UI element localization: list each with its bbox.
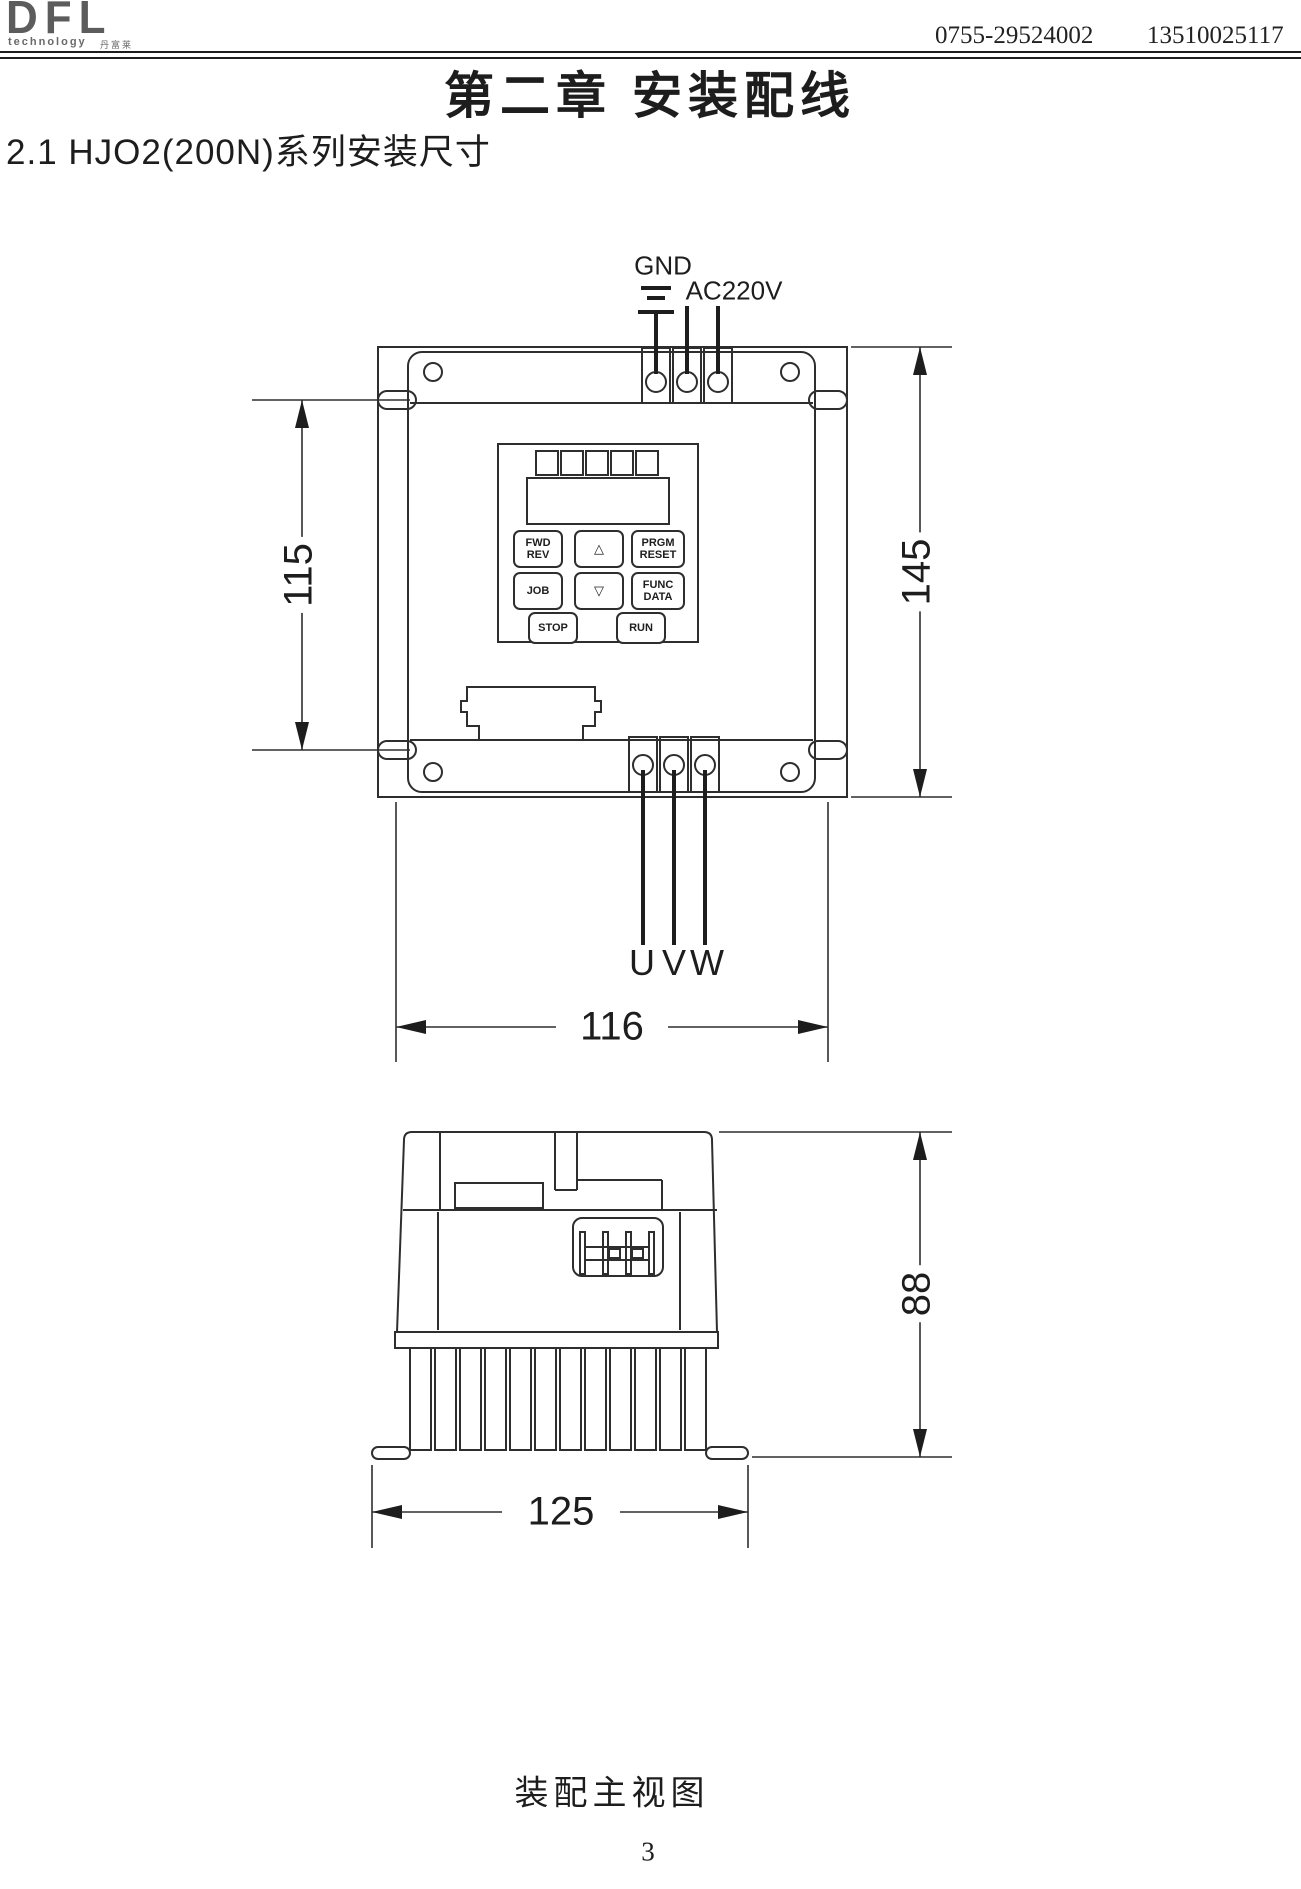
input-wires xyxy=(656,306,718,374)
led-indicator xyxy=(610,450,634,476)
stop-label: STOP xyxy=(538,622,568,634)
func-label: FUNC xyxy=(643,579,674,591)
keypad-button-prgm-reset: PRGM RESET xyxy=(631,530,685,568)
ground-symbol xyxy=(638,288,674,312)
terminal-w-label: W xyxy=(690,942,724,984)
keypad-button-down: ▽ xyxy=(574,572,624,610)
keypad-button-job: JOB xyxy=(513,572,563,610)
led-indicator xyxy=(560,450,584,476)
gnd-label: GND xyxy=(634,251,692,282)
figure-caption: 装配主视图 xyxy=(515,1766,710,1815)
heatsink xyxy=(372,1332,748,1459)
keypad-button-run: RUN xyxy=(616,612,666,644)
data-label: DATA xyxy=(644,591,673,603)
fwd-label: FWD xyxy=(525,537,550,549)
dim-115-label: 115 xyxy=(277,537,322,613)
page-number: 3 xyxy=(641,1837,655,1868)
terminal-u-label: U xyxy=(629,942,655,984)
down-arrow-icon: ▽ xyxy=(594,584,604,598)
led-indicator xyxy=(635,450,659,476)
keypad-button-stop: STOP xyxy=(528,612,578,644)
ac220v-label: AC220V xyxy=(686,276,783,307)
keypad-panel: FWD REV △ PRGM RESET JOB ▽ FUNC DATA STO… xyxy=(497,443,699,643)
led-indicator xyxy=(585,450,609,476)
manual-page: DFL technology 丹富莱 0755-29524002 1351002… xyxy=(0,0,1301,1889)
side-terminal-block xyxy=(573,1218,663,1276)
keypad-button-fwd-rev: FWD REV xyxy=(513,530,563,568)
side-body xyxy=(397,1132,717,1332)
reset-label: RESET xyxy=(640,549,677,561)
keypad-button-up: △ xyxy=(574,530,624,568)
terminal-v-label: V xyxy=(662,942,686,984)
dim-88-label: 88 xyxy=(895,1266,940,1323)
keypad-button-func-data: FUNC DATA xyxy=(631,572,685,610)
keypad-display xyxy=(526,477,670,525)
run-label: RUN xyxy=(629,622,653,634)
dim-125-label: 125 xyxy=(522,1490,601,1535)
job-label: JOB xyxy=(527,585,550,597)
rev-label: REV xyxy=(527,549,550,561)
dim-145-label: 145 xyxy=(895,533,940,612)
dim-116-label: 116 xyxy=(574,1005,650,1050)
control-connector xyxy=(461,687,601,740)
up-arrow-icon: △ xyxy=(594,542,604,556)
prgm-label: PRGM xyxy=(642,537,675,549)
led-indicator xyxy=(535,450,559,476)
